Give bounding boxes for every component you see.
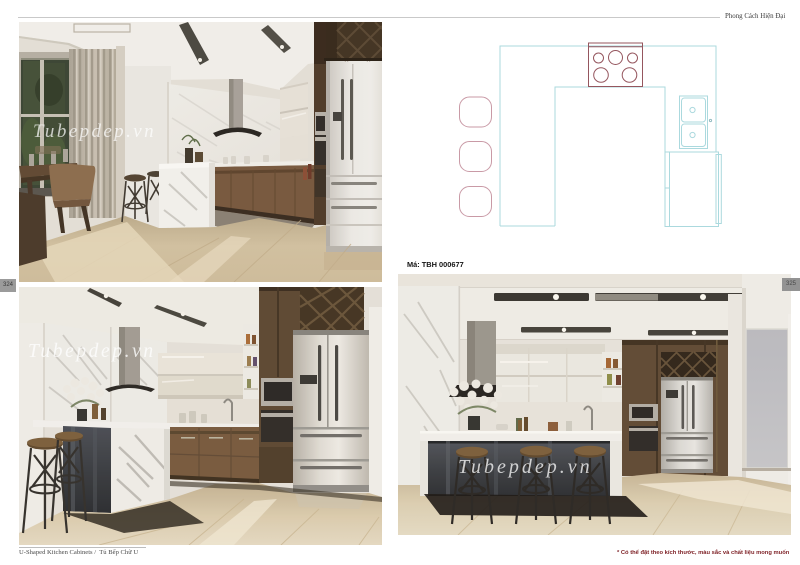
svg-text:Tubepdep.vn: Tubepdep.vn [458, 456, 593, 478]
svg-text:Tubepdep.vn: Tubepdep.vn [33, 121, 156, 142]
svg-text:Tubepdep.vn: Tubepdep.vn [28, 341, 156, 362]
